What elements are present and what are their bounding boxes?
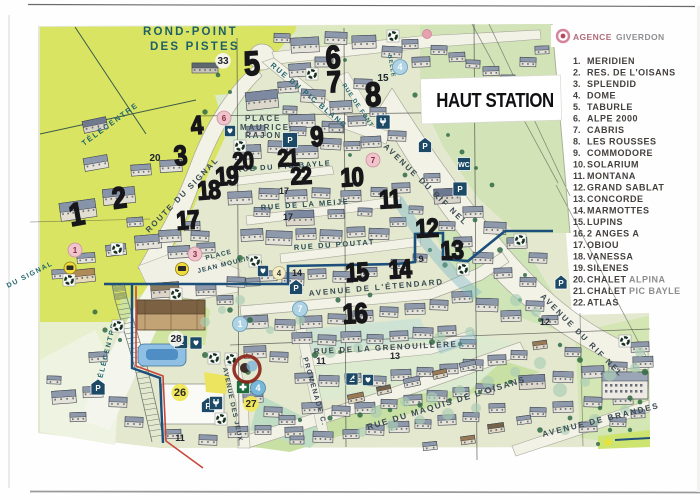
svg-text:ROND-POINT: ROND-POINT [143,26,238,38]
svg-text:1.: 1. [573,56,581,66]
svg-text:27: 27 [245,399,257,410]
svg-text:ATLAS: ATLAS [587,298,619,308]
svg-text:17: 17 [283,212,293,222]
svg-text:SILENES: SILENES [587,263,629,273]
svg-text:22: 22 [290,162,312,190]
svg-text:MARMOTTES: MARMOTTES [587,206,650,216]
svg-text:CABRIS: CABRIS [587,125,625,135]
svg-text:6: 6 [222,114,227,123]
svg-text:11: 11 [175,433,185,443]
svg-text:17: 17 [175,206,200,237]
svg-text:26: 26 [174,387,186,399]
svg-text:SOLARIUM: SOLARIUM [587,160,639,170]
svg-text:2.: 2. [573,68,581,78]
svg-text:GRAND SABLAT: GRAND SABLAT [587,183,664,193]
svg-text:WC: WC [458,162,470,169]
svg-text:10.: 10. [573,160,586,170]
svg-text:7: 7 [326,65,341,99]
svg-text:HAUT STATION: HAUT STATION [436,89,554,112]
svg-text:RAJON: RAJON [245,131,282,140]
svg-text:16.: 16. [573,229,586,239]
svg-text:14: 14 [292,268,302,278]
svg-text:2 ANGES A: 2 ANGES A [587,229,639,239]
svg-text:4.: 4. [573,91,581,101]
svg-text:AGENCE: AGENCE [573,32,612,42]
svg-text:8: 8 [364,74,382,114]
svg-text:19.: 19. [573,263,586,273]
svg-text:11: 11 [316,356,326,366]
svg-text:10: 10 [340,163,364,193]
svg-text:P: P [558,279,564,288]
svg-text:20: 20 [232,147,254,175]
svg-text:33: 33 [217,56,229,67]
svg-text:13: 13 [390,351,400,361]
svg-text:15.: 15. [573,217,586,227]
svg-text:LUPINS: LUPINS [587,217,623,227]
svg-text:12: 12 [415,214,439,244]
svg-text:7: 7 [297,304,302,314]
svg-text:P: P [95,384,101,393]
svg-text:11.: 11. [573,171,585,181]
svg-text:9: 9 [418,254,423,264]
svg-text:14: 14 [388,255,413,285]
svg-text:6.: 6. [573,114,581,124]
svg-text:7: 7 [371,156,376,165]
svg-text:CONCORDE: CONCORDE [587,194,644,204]
svg-text:1: 1 [237,319,242,329]
svg-text:TABURLE: TABURLE [587,102,633,112]
svg-text:MERIDIEN: MERIDIEN [587,56,635,66]
svg-text:4: 4 [255,383,260,393]
svg-text:DOME: DOME [587,91,616,101]
svg-text:ALPE 2000: ALPE 2000 [587,114,638,124]
svg-text:17.: 17. [573,240,586,250]
svg-text:14.: 14. [573,206,586,216]
svg-text:12.: 12. [573,183,586,193]
svg-text:CHALET: CHALET [587,286,627,296]
svg-text:LES ROUSSES: LES ROUSSES [587,137,657,147]
svg-text:18.: 18. [573,252,586,262]
svg-text:3: 3 [193,250,198,259]
svg-text:12: 12 [540,317,550,327]
svg-text:DES PISTES: DES PISTES [150,41,240,53]
svg-text:P: P [293,284,299,293]
svg-text:22.: 22. [573,298,586,308]
svg-text:ALPINA: ALPINA [629,275,666,285]
svg-text:8.: 8. [573,137,581,147]
svg-text:1: 1 [73,246,78,255]
svg-text:4: 4 [397,62,402,72]
svg-text:SPLENDID: SPLENDID [587,79,637,89]
svg-text:20.: 20. [573,275,586,285]
svg-text:GIVERDON: GIVERDON [616,32,665,42]
svg-text:P: P [457,185,463,194]
svg-text:PIC BAYLE: PIC BAYLE [629,286,681,296]
svg-text:5.: 5. [573,102,581,112]
svg-text:PLACE: PLACE [245,114,281,123]
svg-text:MONTANA: MONTANA [587,171,636,181]
svg-text:20: 20 [149,153,161,164]
svg-text:COMMODORE: COMMODORE [587,148,653,158]
svg-text:7.: 7. [573,125,581,135]
svg-text:13.: 13. [573,194,586,204]
svg-text:11: 11 [378,185,401,215]
svg-text:CHALET: CHALET [587,275,627,285]
svg-text:9.: 9. [573,148,581,158]
svg-text:P: P [422,142,428,151]
svg-text:17: 17 [279,186,289,196]
svg-text:VANESSA: VANESSA [587,252,633,262]
svg-text:3.: 3. [573,79,581,89]
svg-text:28: 28 [170,334,182,345]
svg-text:4: 4 [277,269,282,278]
svg-text:21.: 21. [573,286,586,296]
svg-text:16: 16 [342,297,368,331]
svg-text:RES. DE L'OISANS: RES. DE L'OISANS [587,68,676,78]
svg-text:15: 15 [345,258,369,288]
svg-text:13: 13 [440,236,464,266]
svg-text:OBIOU: OBIOU [587,240,619,250]
